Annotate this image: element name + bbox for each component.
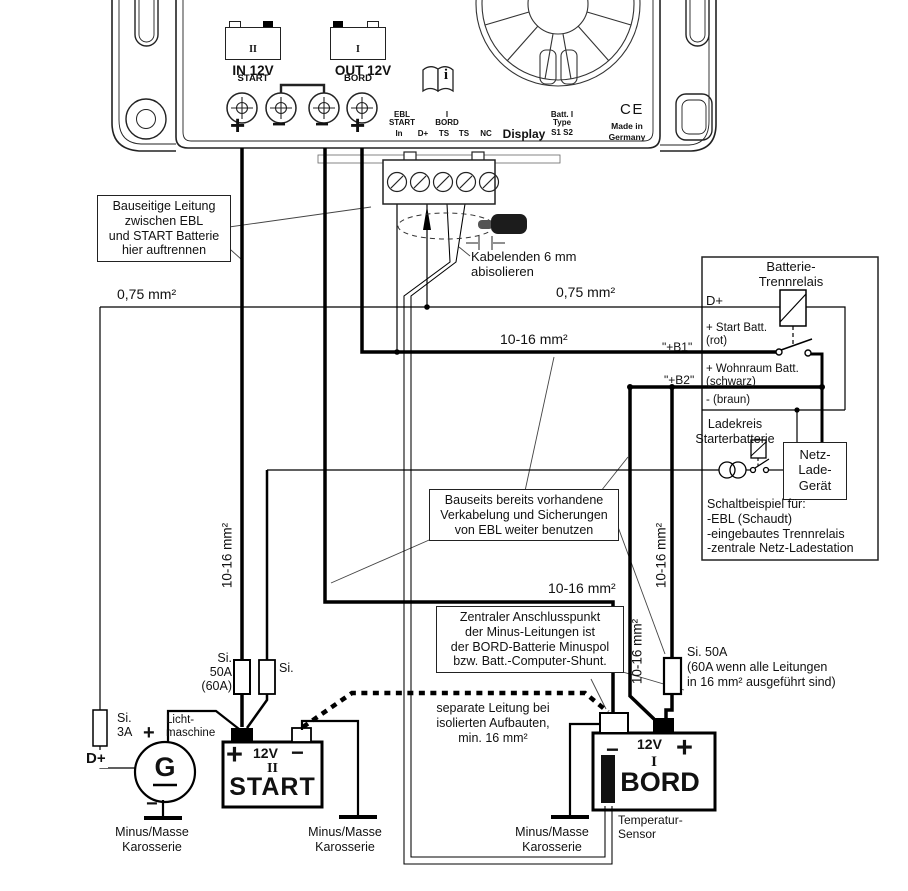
gauge-1016-vertical-mid: 10-16 mm²: [630, 612, 645, 692]
cable-end-detail: [398, 206, 527, 250]
alternator-dplus-label: D+: [84, 750, 108, 768]
start-icon-numeral: II: [226, 44, 280, 57]
manual-icon-i: i: [439, 68, 453, 83]
trennrelais-braun: - (braun): [706, 394, 750, 408]
note-kabelenden: Kabelenden 6 mm abisolieren: [471, 249, 577, 280]
ladekreis-label: Ladekreis Starterbatterie: [681, 417, 789, 447]
ground-symbols: [144, 817, 589, 818]
ground-label-bord: Minus/Masse Karosserie: [502, 825, 602, 855]
terminal-sign-minus-2: −: [315, 111, 329, 139]
note-bauseits-verkabelung: Bauseits bereits vorhandene Verkabelung …: [429, 489, 619, 541]
gauge-075-right: 0,75 mm²: [556, 284, 615, 301]
fuse-label-si50a-left: Si. 50A (60A): [184, 651, 232, 693]
fan-icon: [476, 0, 640, 86]
gauge-1016-minus: 10-16 mm²: [548, 580, 616, 597]
bord-icon-name: BORD: [331, 73, 385, 85]
pin-label-nc: NC: [476, 130, 496, 138]
wire-tag-b1: "+B1": [662, 340, 692, 354]
note-zentraler-anschlusspunkt: Zentraler Anschlusspunkt der Minus-Leitu…: [436, 606, 624, 673]
pin-label-ts1: TS: [435, 130, 453, 138]
terminal-sign-plus-out: +: [350, 110, 365, 141]
start-battery-voltage: 12V: [253, 745, 278, 762]
fuse-label-si: Si.: [279, 661, 294, 676]
netz-lade-geraet-box: Netz- Lade- Gerät: [783, 442, 847, 500]
alternator-plus-sign: +: [143, 722, 155, 746]
pin-label-bord: BORD: [432, 119, 462, 127]
schaltbeispiel-list: Schaltbeispiel für: -EBL (Schaudt) -eing…: [707, 497, 854, 556]
pin-label-type: Type: [547, 119, 577, 127]
bord-battery-voltage: 12V: [637, 736, 662, 753]
note-bauseitige-leitung: Bauseitige Leitung zwischen EBL und STAR…: [97, 195, 231, 262]
made-in-germany-label: Made in Germany: [600, 121, 654, 142]
note-separate-leitung: separate Leitung bei isolierten Aufbaute…: [426, 701, 560, 745]
ce-mark: CE: [620, 101, 644, 119]
trennrelais-wohnraum: + Wohnraum Batt. (schwarz): [706, 363, 799, 389]
gauge-075-left: 0,75 mm²: [117, 286, 176, 303]
ground-label-alternator: Minus/Masse Karosserie: [102, 825, 202, 855]
bord-battery-name: BORD: [605, 767, 715, 799]
start-battery-name: START: [223, 773, 322, 803]
pin-label-dplus: D+: [413, 130, 433, 138]
temperature-sensor-label: Temperatur- Sensor: [618, 813, 683, 842]
pin-label-s1s2: S1 S2: [544, 129, 580, 137]
trennrelais-title: Batterie- Trennrelais: [741, 259, 841, 290]
bord-icon-numeral: I: [331, 44, 385, 57]
gauge-1016-vertical-left: 10-16 mm²: [220, 516, 235, 596]
trennrelais-start-batt: + Start Batt. (rot): [706, 322, 767, 348]
connector-block: [383, 152, 499, 204]
wire-tag-b2: "+B2": [664, 373, 694, 387]
gauge-1016-out: 10-16 mm²: [500, 331, 568, 348]
ground-label-start: Minus/Masse Karosserie: [295, 825, 395, 855]
terminal-sign-plus-in: +: [230, 110, 245, 141]
trennrelais-dplus: D+: [706, 293, 723, 308]
pin-label-start: START: [385, 119, 419, 127]
terminal-sign-minus-1: −: [272, 111, 286, 139]
alternator-g: G: [152, 752, 178, 784]
gauge-1016-vertical-right: 10-16 mm²: [654, 516, 669, 596]
junction-dots: [394, 304, 825, 412]
bord-battery-icon: I BORD: [330, 27, 386, 60]
pin-label-ts2: TS: [455, 130, 473, 138]
fuse-label-si50a-right: Si. 50A (60A wenn alle Leitungen in 16 m…: [687, 645, 836, 689]
start-battery-icon: II START: [225, 27, 281, 60]
alternator-minus-sign: −: [146, 793, 158, 817]
wiring-diagram: { "device": { "in_label": "IN 12V", "out…: [0, 0, 908, 891]
fuse-label-si3a: Si. 3A: [117, 712, 132, 740]
start-icon-name: START: [226, 73, 280, 85]
alternator-label: Licht- maschine: [166, 714, 215, 740]
pin-label-in: In: [388, 130, 410, 138]
